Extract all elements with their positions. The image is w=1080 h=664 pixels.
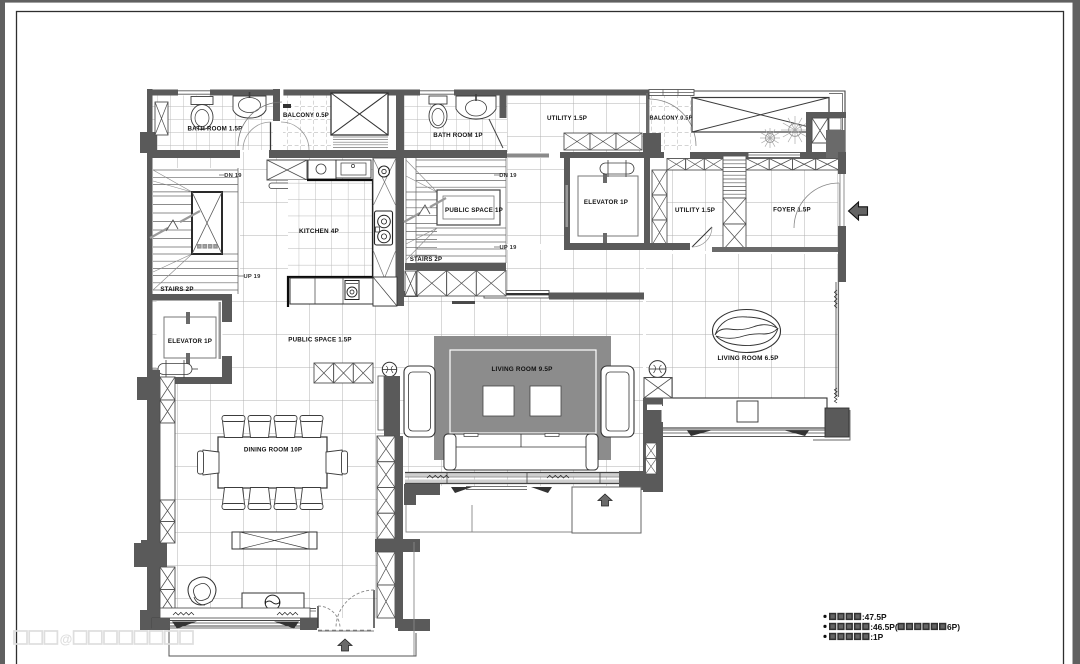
- svg-text:ELEVATOR 1P: ELEVATOR 1P: [168, 338, 212, 345]
- svg-text:UP 19: UP 19: [499, 245, 517, 251]
- svg-text:BALCONY 0.5P: BALCONY 0.5P: [283, 113, 329, 119]
- svg-text::46.5P(: :46.5P(: [870, 622, 898, 632]
- svg-text:BALCONY 0.5P: BALCONY 0.5P: [649, 116, 692, 122]
- svg-text:LIVING ROOM 9.5P: LIVING ROOM 9.5P: [491, 366, 553, 373]
- svg-text:6P): 6P): [947, 622, 960, 632]
- svg-text:BATH ROOM 1.5P: BATH ROOM 1.5P: [188, 126, 243, 133]
- svg-text:PUBLIC SPACE 1P: PUBLIC SPACE 1P: [445, 207, 503, 214]
- svg-text:UTILITY 1.5P: UTILITY 1.5P: [547, 115, 587, 122]
- svg-text:DINING ROOM 10P: DINING ROOM 10P: [244, 447, 302, 454]
- svg-text:PUBLIC SPACE 1.5P: PUBLIC SPACE 1.5P: [288, 337, 351, 344]
- svg-text:KITCHEN 4P: KITCHEN 4P: [299, 228, 340, 235]
- svg-text:DN 19: DN 19: [224, 173, 242, 179]
- svg-text:UTILITY 1.5P: UTILITY 1.5P: [675, 207, 715, 214]
- svg-text:LIVING ROOM 6.5P: LIVING ROOM 6.5P: [717, 355, 779, 362]
- svg-text:STAIRS 2P: STAIRS 2P: [410, 257, 442, 263]
- svg-text:ELEVATOR 1P: ELEVATOR 1P: [584, 199, 628, 206]
- svg-text::47.5P: :47.5P: [862, 612, 887, 622]
- svg-text:STAIRS 2P: STAIRS 2P: [160, 286, 193, 293]
- svg-text::1P: :1P: [870, 632, 883, 642]
- svg-text:FOYER 1.5P: FOYER 1.5P: [773, 207, 811, 214]
- svg-text:UP 19: UP 19: [243, 274, 261, 280]
- svg-text:DN 19: DN 19: [499, 173, 517, 179]
- svg-text:@: @: [60, 632, 73, 647]
- svg-text:BATH ROOM 1P: BATH ROOM 1P: [433, 132, 482, 139]
